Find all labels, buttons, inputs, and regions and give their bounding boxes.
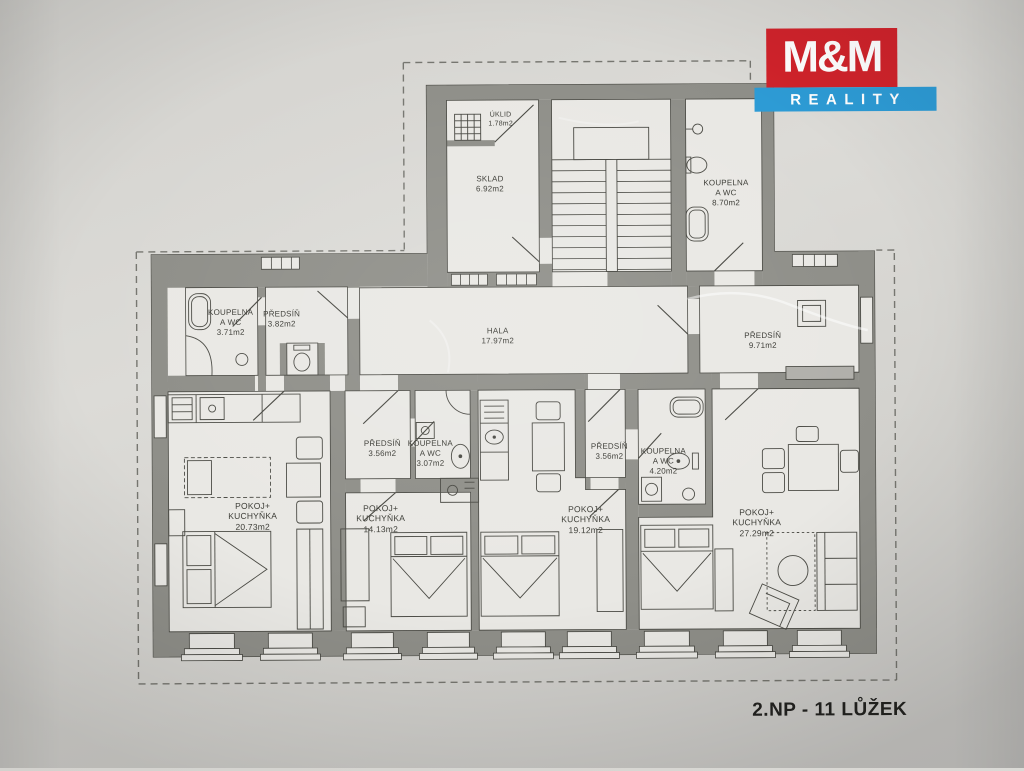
room-label-sklad: SKLAD6.92m2: [476, 174, 504, 194]
logo-mm-text: M&M: [766, 28, 897, 88]
mm-reality-logo: M&M REALITY: [754, 28, 936, 112]
doormat-shape: [786, 366, 854, 379]
room-label-predsin-382: PŘEDSÍŇ3.82m2: [263, 309, 300, 329]
room-label-koupelna-870: KOUPELNAA WC8.70m2: [703, 178, 748, 207]
room-label-pokoj-2729: POKOJ+KUCHYŇKA27.29m2: [732, 507, 781, 538]
room-label-hala: HALA17.97m2: [481, 326, 514, 346]
room-label-koupelna-371: KOUPELNAA WC3.71m2: [208, 308, 253, 337]
room-label-predsin-356-l: PŘEDSÍŇ3.56m2: [364, 439, 401, 459]
floorplan-sheet: ÚKLID1.78m2 SKLAD6.92m2 KOUPELNAA WC8.70…: [0, 0, 1024, 771]
room-label-pokoj-1912: POKOJ+KUCHYŇKA19.12m2: [561, 504, 610, 535]
room-label-pokoj-2073: POKOJ+KUCHYŇKA20.73m2: [228, 501, 277, 532]
logo-reality-text: REALITY: [754, 87, 936, 112]
room-label-predsin-356-r: PŘEDSÍŇ3.56m2: [591, 442, 628, 462]
room-label-koupelna-307: KOUPELNAA WC3.07m2: [408, 439, 453, 468]
room-label-koupelna-420: KOUPELNAA WC4.20m2: [641, 446, 686, 475]
floorplan-photo: ÚKLID1.78m2 SKLAD6.92m2 KOUPELNAA WC8.70…: [0, 0, 1024, 768]
plan-caption: 2.NP - 11 LŮŽEK: [750, 699, 910, 722]
room-label-predsin-971: PŘEDSÍŇ9.71m2: [744, 331, 781, 351]
room-label-pokoj-1413: POKOJ+KUCHYŇKA14.13m2: [356, 503, 405, 534]
windows-bottom: [181, 630, 849, 660]
room-label-uklid: ÚKLID1.78m2: [488, 111, 513, 128]
